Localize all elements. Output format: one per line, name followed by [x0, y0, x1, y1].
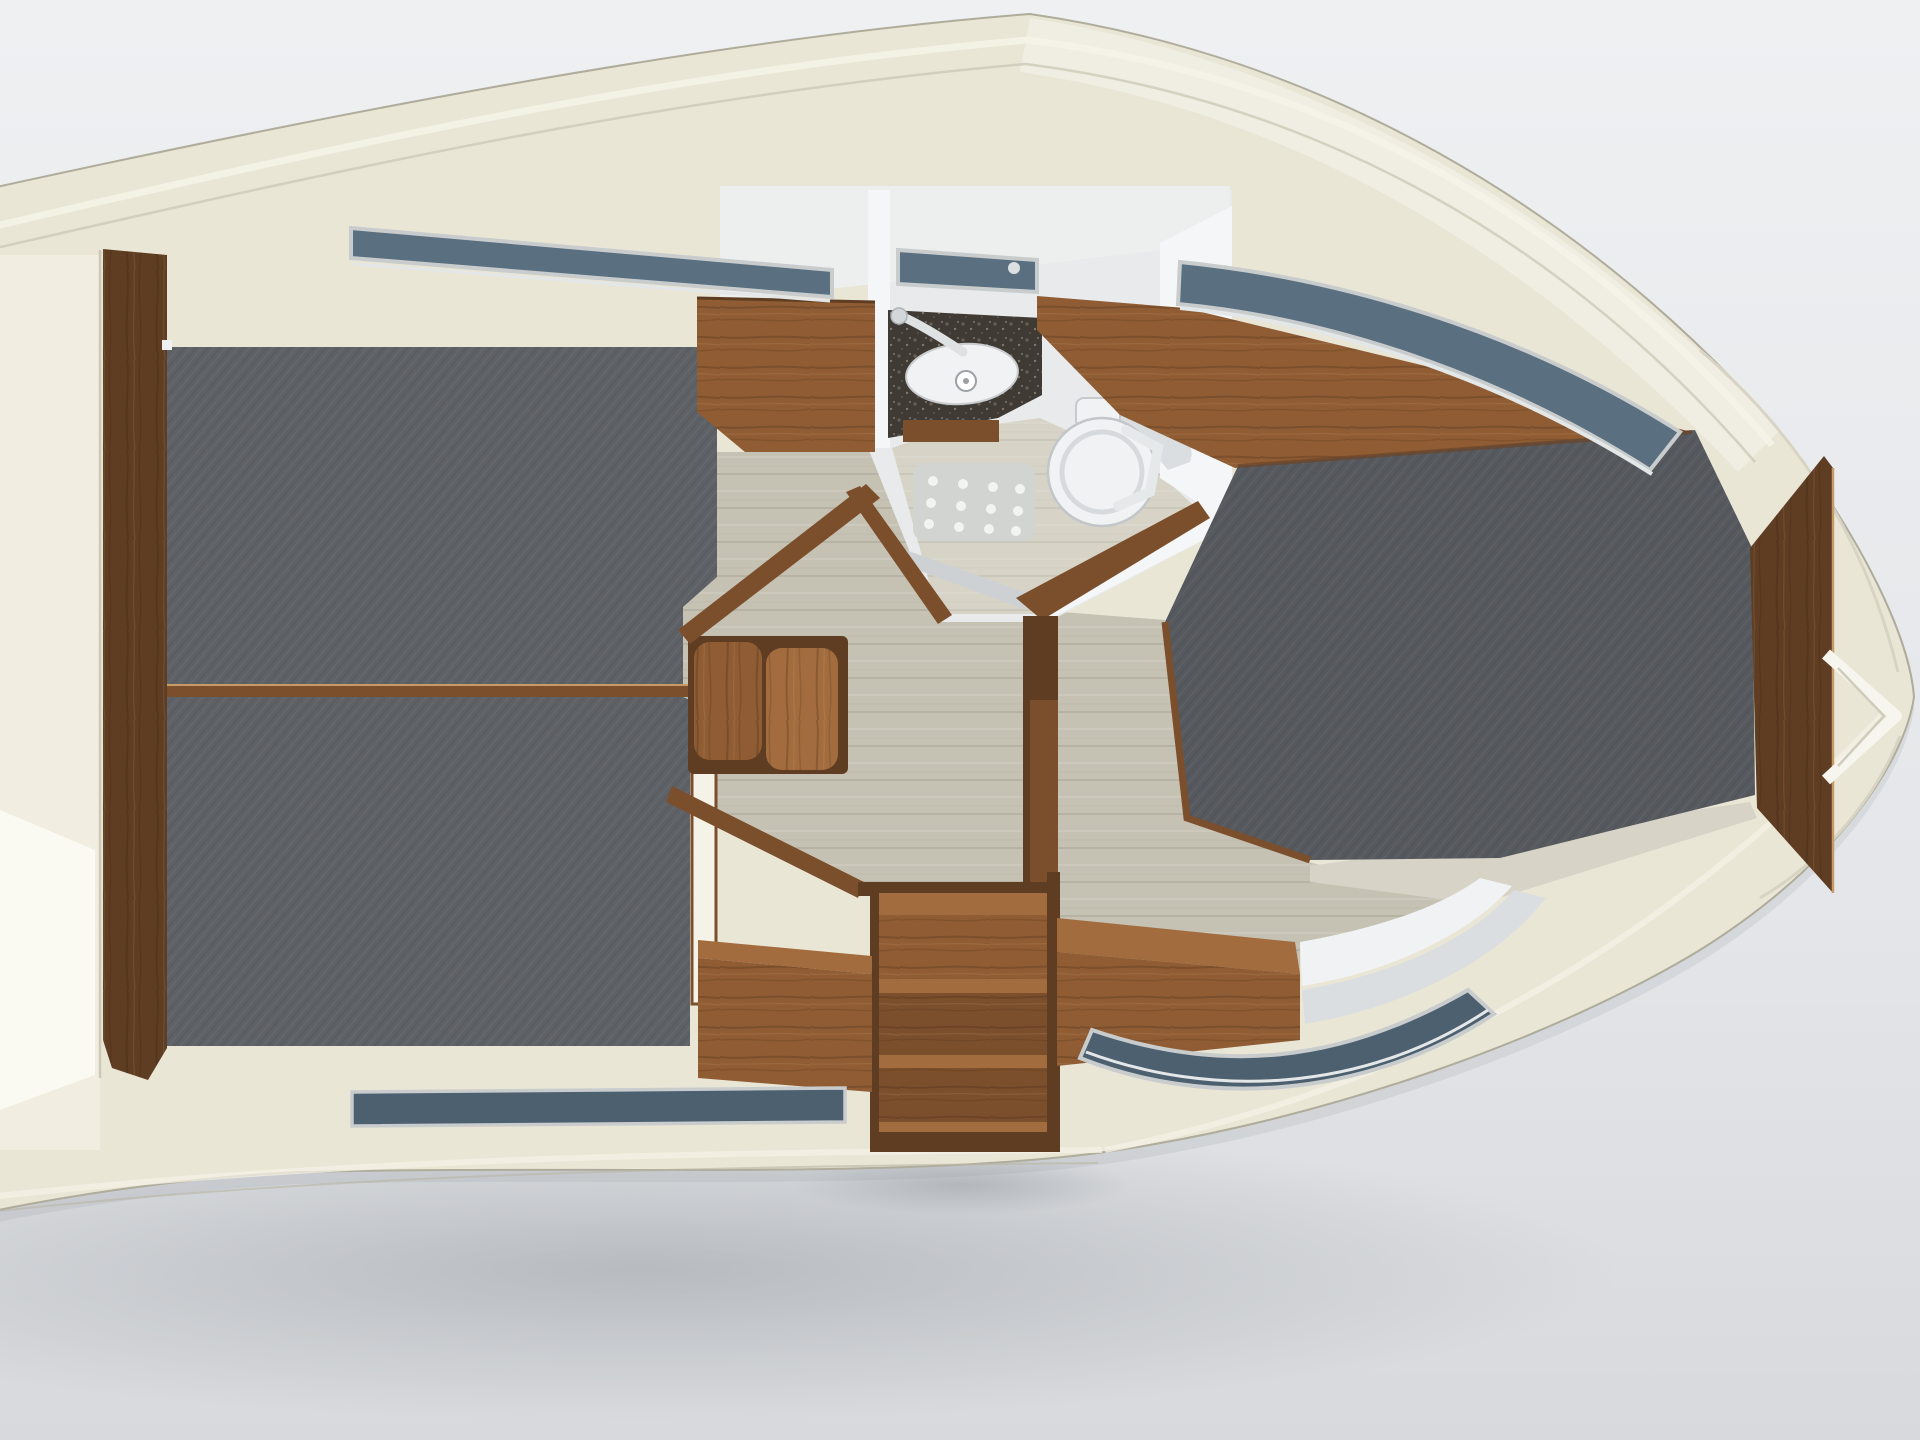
berth-corner-fitting — [162, 340, 172, 350]
window-head-latch — [1008, 262, 1020, 274]
window-bottom-port — [352, 1088, 845, 1126]
port-cabinet-grain — [698, 958, 872, 1092]
floorplan-canvas — [0, 0, 1920, 1440]
vanity-drawer — [903, 420, 999, 442]
midships-cabinet — [697, 298, 875, 452]
seat-bolster-right-grain — [766, 648, 838, 770]
sink-drain-cap — [963, 378, 969, 384]
stair-tread-1-top — [877, 893, 1049, 915]
bow-cabin-partition-step — [1030, 700, 1058, 896]
hull-left-highlight — [0, 810, 95, 1110]
forward-berth-lower-texture — [167, 697, 690, 1046]
stair-tread-4-front — [877, 1132, 1049, 1152]
seat-bolster-left-grain — [694, 642, 762, 760]
faucet-handle — [891, 308, 907, 324]
forward-cabin-side-panel-grain — [103, 249, 167, 1080]
stair-tread-3-grain — [877, 1068, 1049, 1122]
stair-tread-3-top — [877, 1055, 1049, 1068]
stair-tread-1-grain — [877, 915, 1049, 979]
yacht-floorplan-render — [0, 0, 1920, 1440]
stair-tread-4-top — [877, 1122, 1049, 1132]
bow-island-berth-texture — [1165, 430, 1755, 860]
midships-cabinet-grain — [697, 298, 875, 452]
stair-tread-2-top — [877, 979, 1049, 993]
stair-tread-2-grain — [877, 993, 1049, 1055]
companionway-stairs — [870, 872, 1060, 1152]
forward-berth-upper-texture — [167, 347, 717, 686]
berth-divider — [167, 685, 692, 697]
forward-cabin — [103, 249, 717, 1080]
